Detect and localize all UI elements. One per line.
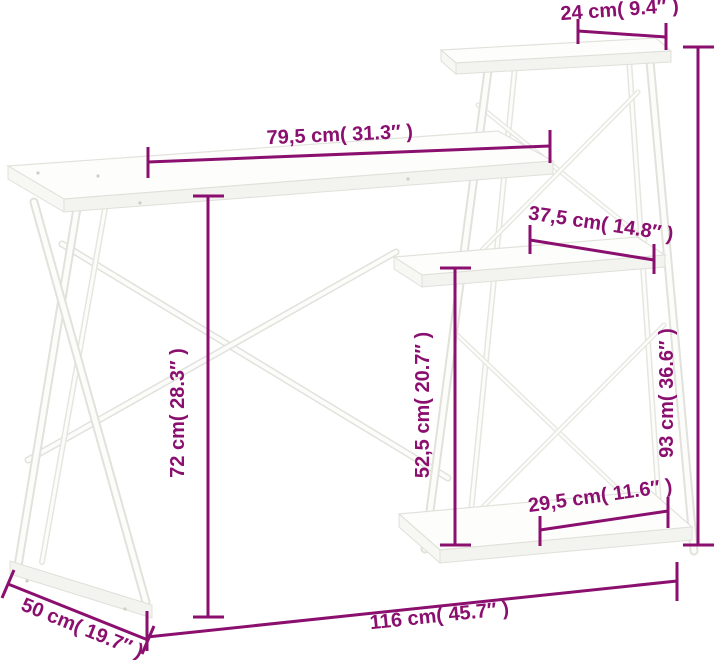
screw-dot <box>123 607 126 610</box>
screw-dot <box>36 171 39 174</box>
top-shelf <box>441 38 671 74</box>
cross-rail <box>62 244 448 478</box>
screw-dot <box>96 174 99 177</box>
dim-label: 72 cm( 28.3″ ) <box>167 348 189 478</box>
diagram-canvas: 24 cm( 9.4″ ) 79,5 cm( 31.3″ ) 37,5 cm( … <box>0 0 720 660</box>
dim-overall-width: 116 cm( 45.7″ ) <box>147 562 677 651</box>
dim-label: 24 cm( 9.4″ ) <box>560 0 680 25</box>
screw-dot <box>25 579 28 582</box>
shelf-tower-rear-legs <box>470 44 660 522</box>
dimension-diagram: 24 cm( 9.4″ ) 79,5 cm( 31.3″ ) 37,5 cm( … <box>0 0 720 660</box>
dim-label: 93 cm( 36.6″ ) <box>656 328 678 458</box>
dim-desktop-height: 72 cm( 28.3″ ) <box>167 196 224 617</box>
dim-tick <box>2 570 14 598</box>
cross-rail <box>28 252 396 460</box>
screw-dot <box>406 177 409 180</box>
dim-measure-line <box>578 31 666 37</box>
shelf-tower-front-legs <box>425 50 694 551</box>
dim-label: 52,5 cm( 20.7″ ) <box>412 332 434 478</box>
dim-label: 37,5 cm( 14.8″ ) <box>527 202 675 245</box>
dim-label: 116 cm( 45.7″ ) <box>369 598 510 634</box>
screw-dot <box>138 201 141 204</box>
